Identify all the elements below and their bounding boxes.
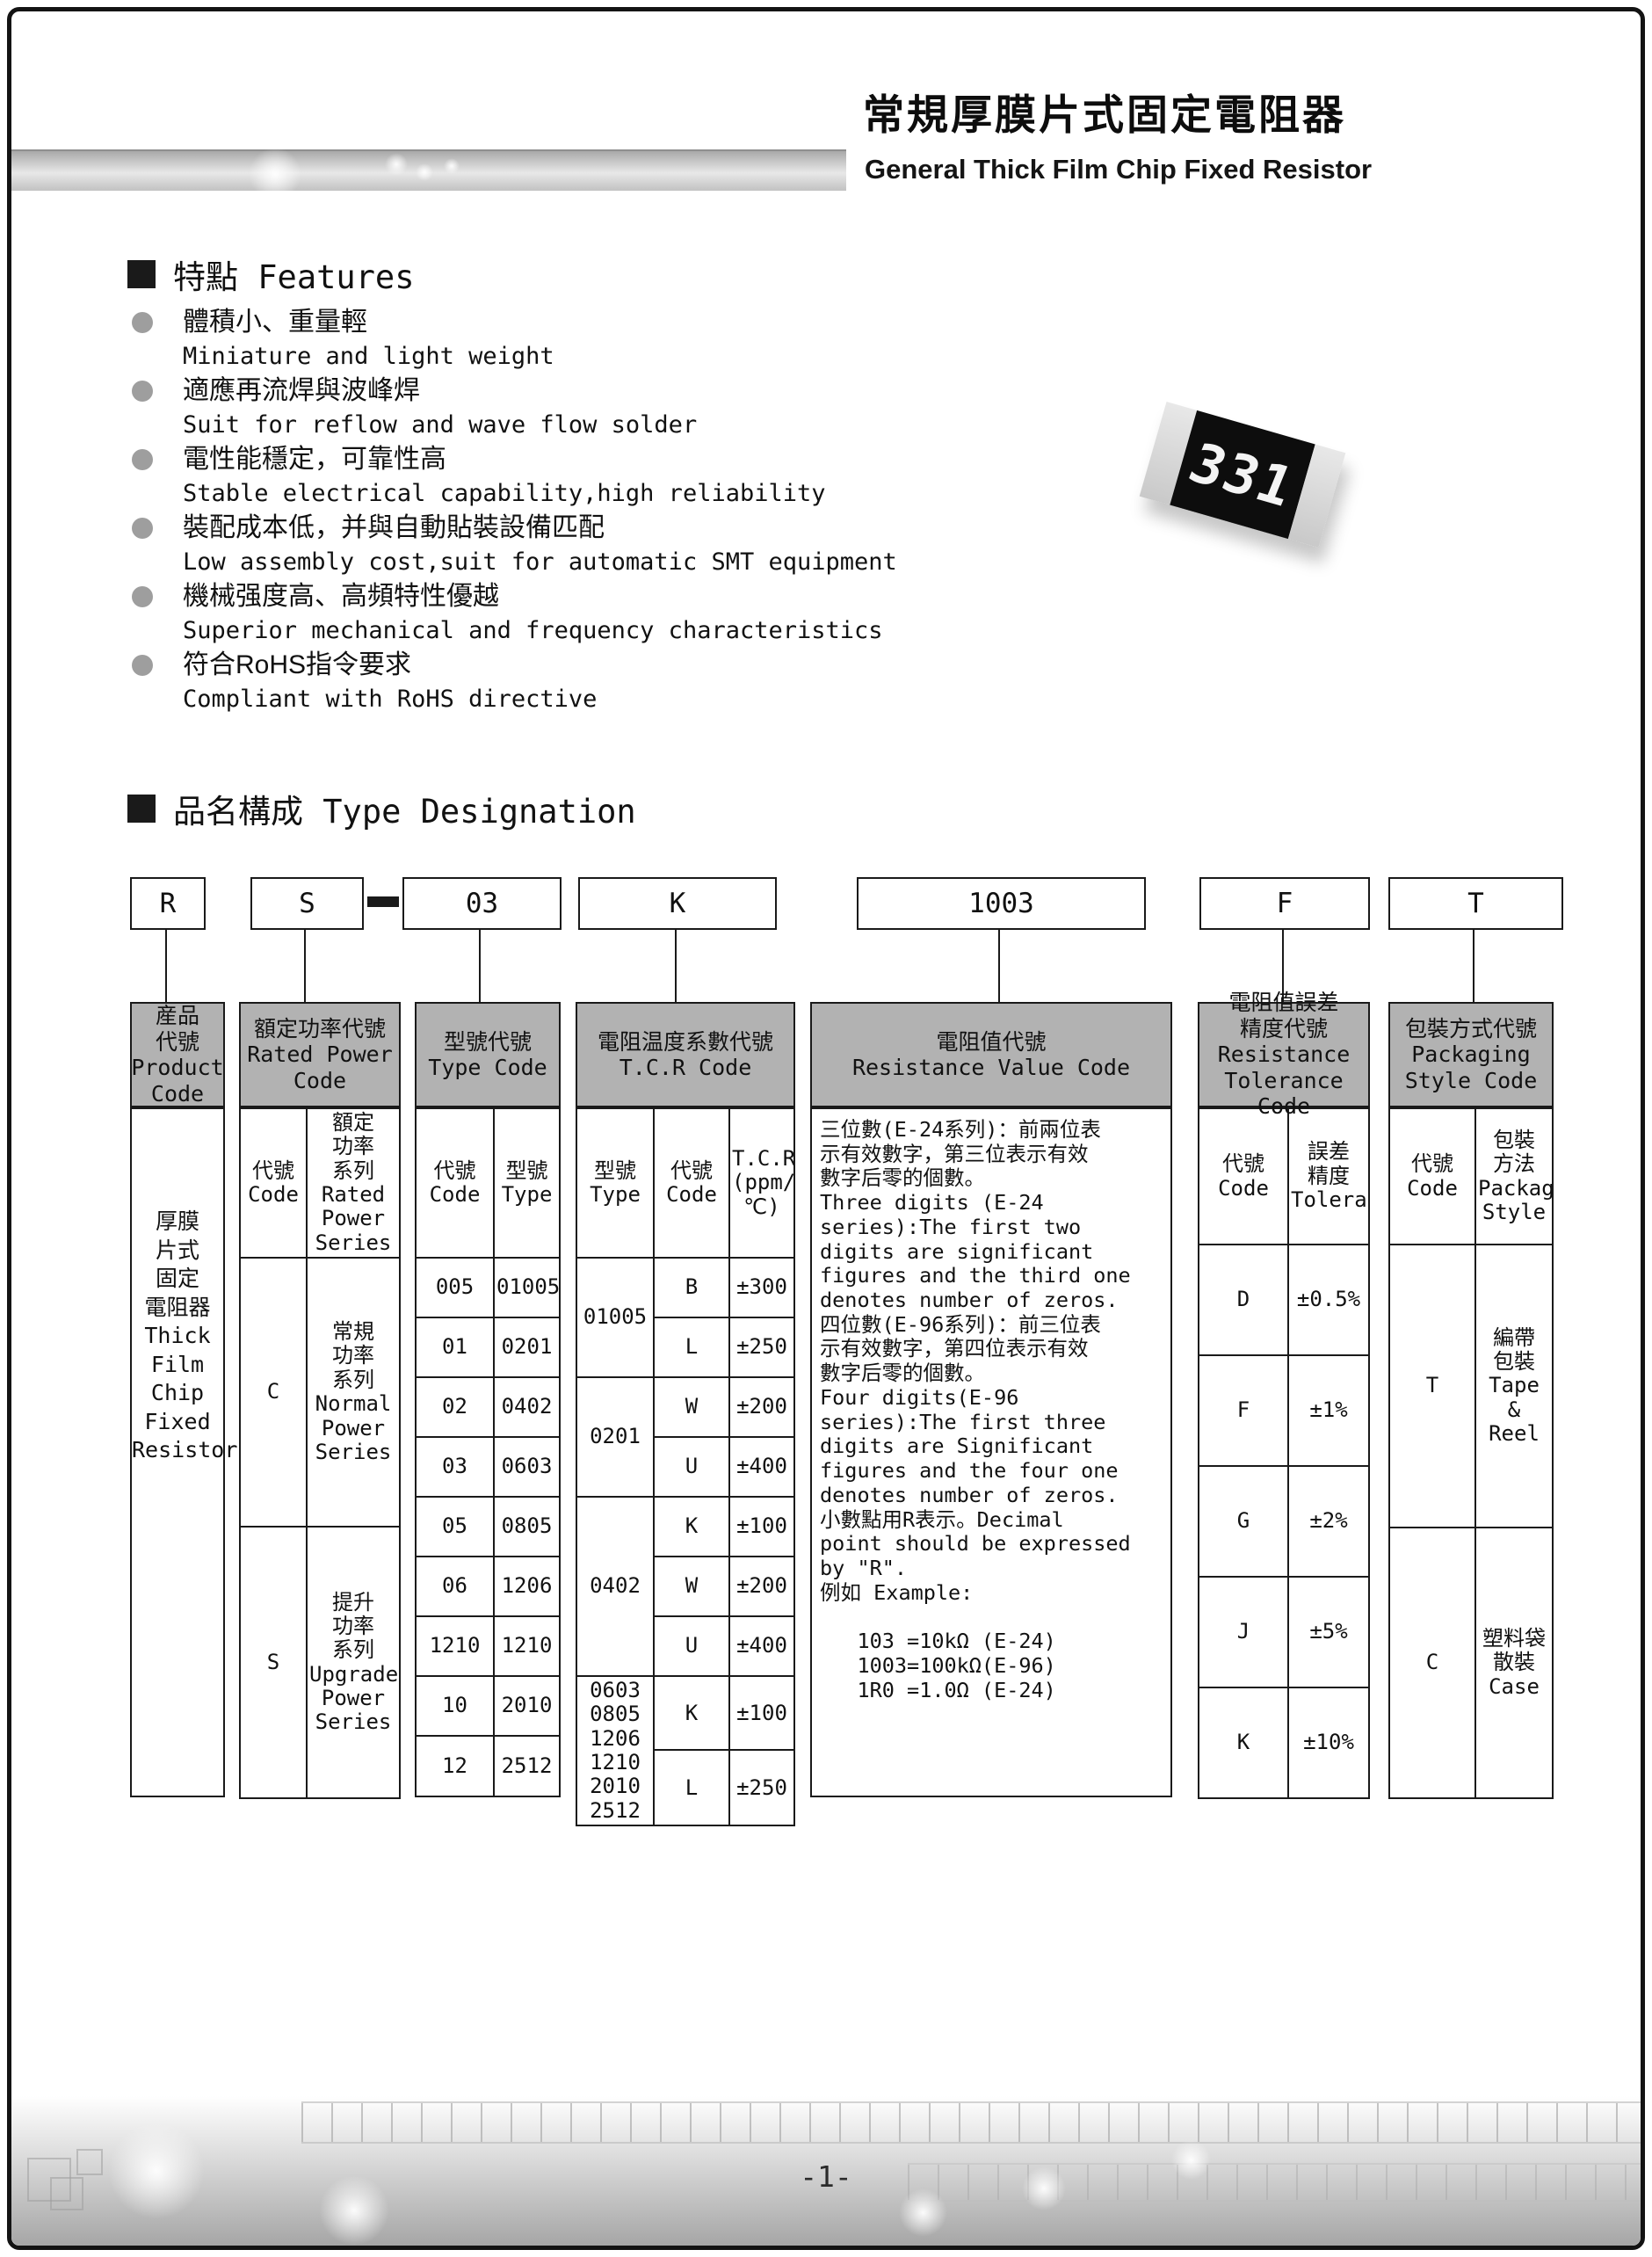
cell-code: W: [654, 1557, 729, 1616]
connector-line: [998, 928, 1000, 1004]
cell-tolerance: ±10%: [1288, 1687, 1369, 1798]
code-box-rated-power: S: [250, 877, 364, 930]
connector-line: [165, 928, 167, 1004]
bullet-dot-icon: [132, 586, 153, 607]
type-designation-heading-text: 品名構成 Type Designation: [173, 785, 636, 832]
code-box-product: R: [130, 877, 206, 930]
tolerance-grid: 代號 Code 誤差 精度 Tolerance D±0.5% F±1% G±2%…: [1198, 1107, 1370, 1799]
subheader-cell: 包裝 方法 Packaging Style: [1475, 1108, 1553, 1245]
type-designation-heading: 品名構成 Type Designation: [127, 785, 636, 832]
cell-code: U: [654, 1616, 729, 1676]
sparkle-dot-icon: [385, 153, 408, 176]
cell-tcr: ±100: [729, 1676, 794, 1750]
feature-item: 電性能穩定，可靠性高 Stable electrical capability,…: [132, 441, 1142, 510]
bullet-dot-icon: [132, 655, 153, 676]
cell-tcr: ±400: [729, 1437, 794, 1497]
cell-tcr: ±100: [729, 1497, 794, 1557]
cell-type: 0201: [494, 1317, 560, 1377]
chip-marking: 331: [1181, 431, 1305, 519]
cell-code: 05: [416, 1497, 494, 1557]
feature-en: Superior mechanical and frequency charac…: [183, 614, 1142, 647]
header-gradient-band: [11, 149, 846, 191]
cell-type: 2512: [494, 1736, 560, 1796]
code-box-packaging: T: [1388, 877, 1563, 930]
cell-code: 01: [416, 1317, 494, 1377]
page-title: 常規厚膜片式固定電阻器: [863, 81, 1346, 142]
connector-line: [479, 928, 481, 1004]
cell-type-group: 0201: [576, 1377, 654, 1497]
features-section-heading: 特點 Features: [127, 250, 414, 298]
footer-band: -1-: [11, 2096, 1641, 2246]
subheader-cell: 型號 Type: [576, 1108, 654, 1258]
col-header-product: 産品 代號 Product Code: [130, 1002, 225, 1107]
cell-code: D: [1199, 1245, 1288, 1355]
feature-zh: 符合RoHS指令要求: [183, 647, 1142, 683]
cell-code: T: [1389, 1245, 1475, 1528]
cell-tcr: ±200: [729, 1557, 794, 1616]
cell-tolerance: ±0.5%: [1288, 1245, 1369, 1355]
cell-type: 1206: [494, 1557, 560, 1616]
page-subtitle: General Thick Film Chip Fixed Resistor: [865, 154, 1372, 185]
code-box-resistance-value: 1003: [857, 877, 1146, 930]
bullet-dot-icon: [132, 312, 153, 333]
cell-code: K: [654, 1497, 729, 1557]
feature-en: Stable electrical capability,high reliab…: [183, 477, 1142, 510]
cell-code: U: [654, 1437, 729, 1497]
feature-en: Suit for reflow and wave flow solder: [183, 409, 1142, 441]
bullet-dot-icon: [132, 381, 153, 402]
sparkle-dot-icon: [416, 163, 433, 181]
feature-zh: 電性能穩定，可靠性高: [183, 441, 1142, 477]
cell-type-group: 0603 0805 1206 1210 2010 2512: [576, 1676, 654, 1825]
feature-zh: 裝配成本低，并與自動貼裝設備匹配: [183, 510, 1142, 546]
sparkle-dot-icon: [444, 158, 460, 174]
sparkle-dot-icon: [249, 148, 301, 200]
type-code-grid: 代號 Code 型號 Type 00501005 010201 020402 0…: [415, 1107, 561, 1797]
cell-type: 1210: [494, 1616, 560, 1676]
cell-code: 03: [416, 1437, 494, 1497]
cell-code: G: [1199, 1466, 1288, 1577]
cell-code: S: [240, 1527, 307, 1798]
cell-tolerance: ±1%: [1288, 1355, 1369, 1466]
connector-line: [675, 928, 677, 1004]
subheader-cell: 代號 Code: [416, 1108, 494, 1258]
rated-power-grid: 代號 Code 額定 功率 系列 Rated Power Series C 常規…: [239, 1107, 401, 1799]
feature-item: 裝配成本低，并與自動貼裝設備匹配 Low assembly cost,suit …: [132, 510, 1142, 578]
cell-type: 0805: [494, 1497, 560, 1557]
cell-style: 編帶 包裝 Tape & Reel: [1475, 1245, 1553, 1528]
product-code-body: 厚膜 片式 固定 電阻器 Thick Film Chip Fixed Resis…: [130, 1107, 225, 1797]
dash-separator: [367, 896, 399, 907]
col-header-resistance-value: 電阻值代號 Resistance Value Code: [810, 1002, 1172, 1107]
subheader-cell: 代號 Code: [1199, 1108, 1288, 1245]
connector-line: [304, 928, 306, 1004]
section-marker-icon: [127, 795, 156, 823]
cell-tcr: ±200: [729, 1377, 794, 1437]
cell-style: 塑料袋 散裝 Case: [1475, 1528, 1553, 1798]
footer-squares-row: [301, 2101, 1641, 2144]
code-box-tcr: K: [578, 877, 777, 930]
feature-item: 機械强度高、高頻特性優越 Superior mechanical and fre…: [132, 578, 1142, 647]
packaging-grid: 代號 Code 包裝 方法 Packaging Style T 編帶 包裝 Ta…: [1388, 1107, 1554, 1799]
tcr-table: 型號 Type 代號 Code T.C.R (ppm/℃) 01005 B ±3…: [576, 1107, 795, 1826]
subheader-cell: 代號 Code: [240, 1108, 307, 1258]
cell-type: 01005: [494, 1258, 560, 1317]
bullet-dot-icon: [132, 518, 153, 539]
cell-code: L: [654, 1317, 729, 1377]
cell-type-group: 0402: [576, 1497, 654, 1676]
col-header-type: 型號代號 Type Code: [415, 1002, 561, 1107]
cell-tcr: ±400: [729, 1616, 794, 1676]
cell-type: 0603: [494, 1437, 560, 1497]
cell-tcr: ±250: [729, 1317, 794, 1377]
cell-code: C: [240, 1258, 307, 1527]
page-number: -1-: [11, 2159, 1641, 2194]
feature-zh: 適應再流焊與波峰焊: [183, 373, 1142, 409]
cell-code: 10: [416, 1676, 494, 1736]
packaging-table: 代號 Code 包裝 方法 Packaging Style T 編帶 包裝 Ta…: [1388, 1107, 1554, 1799]
feature-item: 體積小、重量輕 Miniature and light weight: [132, 304, 1142, 373]
feature-en: Miniature and light weight: [183, 340, 1142, 373]
resistance-value-body: 三位數(E-24系列)：前兩位表 示有效數字，第三位表示有效 數字后零的個數。 …: [810, 1107, 1172, 1797]
datasheet-page: 常規厚膜片式固定電阻器 General Thick Film Chip Fixe…: [0, 0, 1652, 2257]
cell-code: K: [1199, 1687, 1288, 1798]
cell-code: 12: [416, 1736, 494, 1796]
cell-code: K: [654, 1676, 729, 1750]
cell-tolerance: ±2%: [1288, 1466, 1369, 1577]
cell-series: 常規 功率 系列 Normal Power Series: [307, 1258, 400, 1527]
cell-code: B: [654, 1258, 729, 1317]
feature-en: Compliant with RoHS directive: [183, 683, 1142, 715]
col-header-rated-power: 額定功率代號 Rated Power Code: [239, 1002, 401, 1107]
feature-zh: 機械强度高、高頻特性優越: [183, 578, 1142, 614]
col-header-packaging: 包裝方式代號 Packaging Style Code: [1388, 1002, 1554, 1107]
bullet-dot-icon: [132, 449, 153, 470]
code-box-type: 03: [402, 877, 562, 930]
cell-type: 2010: [494, 1676, 560, 1736]
cell-code: W: [654, 1377, 729, 1437]
resistor-chip-image: 331: [1140, 402, 1346, 548]
tolerance-table: 代號 Code 誤差 精度 Tolerance D±0.5% F±1% G±2%…: [1198, 1107, 1370, 1799]
cell-code: L: [654, 1750, 729, 1825]
col-header-tcr: 電阻温度系數代號 T.C.R Code: [576, 1002, 795, 1107]
cell-tolerance: ±5%: [1288, 1577, 1369, 1687]
feature-item: 符合RoHS指令要求 Compliant with RoHS directive: [132, 647, 1142, 715]
subheader-cell: T.C.R (ppm/℃): [729, 1108, 794, 1258]
connector-line: [1473, 928, 1474, 1004]
cell-series: 提升 功率 系列 Upgraded Power Series: [307, 1527, 400, 1798]
features-heading-text: 特點 Features: [173, 250, 414, 298]
cell-type: 0402: [494, 1377, 560, 1437]
subheader-cell: 型號 Type: [494, 1108, 560, 1258]
cell-type-group: 01005: [576, 1258, 654, 1377]
code-box-tolerance: F: [1199, 877, 1370, 930]
subheader-cell: 代號 Code: [1389, 1108, 1475, 1245]
feature-item: 適應再流焊與波峰焊 Suit for reflow and wave flow …: [132, 373, 1142, 441]
cell-tcr: ±300: [729, 1258, 794, 1317]
cell-code: F: [1199, 1355, 1288, 1466]
cell-code: 02: [416, 1377, 494, 1437]
rated-power-table: 代號 Code 額定 功率 系列 Rated Power Series C 常規…: [239, 1107, 401, 1799]
section-marker-icon: [127, 260, 156, 288]
cell-code: 06: [416, 1557, 494, 1616]
cell-code: 005: [416, 1258, 494, 1317]
cell-tcr: ±250: [729, 1750, 794, 1825]
tcr-grid: 型號 Type 代號 Code T.C.R (ppm/℃) 01005 B ±3…: [576, 1107, 795, 1826]
type-code-table: 代號 Code 型號 Type 00501005 010201 020402 0…: [415, 1107, 561, 1797]
cell-code: C: [1389, 1528, 1475, 1798]
cell-code: 1210: [416, 1616, 494, 1676]
subheader-cell: 代號 Code: [654, 1108, 729, 1258]
cell-code: J: [1199, 1577, 1288, 1687]
subheader-cell: 額定 功率 系列 Rated Power Series: [307, 1108, 400, 1258]
col-header-tolerance: 電阻值誤差 精度代號 Resistance Tolerance Code: [1198, 1002, 1370, 1107]
feature-zh: 體積小、重量輕: [183, 304, 1142, 340]
subheader-cell: 誤差 精度 Tolerance: [1288, 1108, 1369, 1245]
sparkle-dot-icon: [899, 2188, 947, 2237]
features-list: 體積小、重量輕 Miniature and light weight 適應再流焊…: [132, 304, 1142, 715]
feature-en: Low assembly cost,suit for automatic SMT…: [183, 546, 1142, 578]
